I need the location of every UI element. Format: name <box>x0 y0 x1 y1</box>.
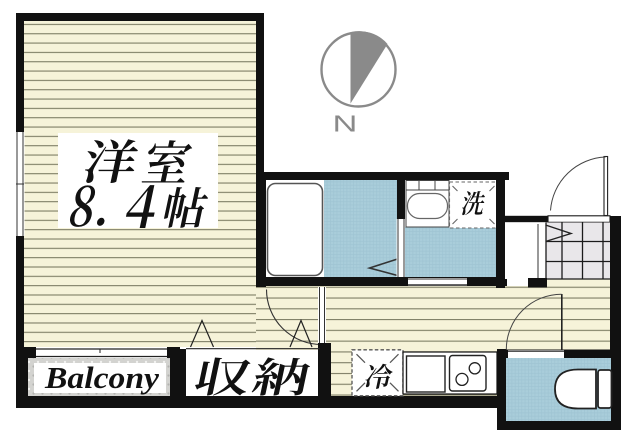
svg-text:N: N <box>333 111 358 137</box>
svg-text:Balcony: Balcony <box>44 360 159 395</box>
